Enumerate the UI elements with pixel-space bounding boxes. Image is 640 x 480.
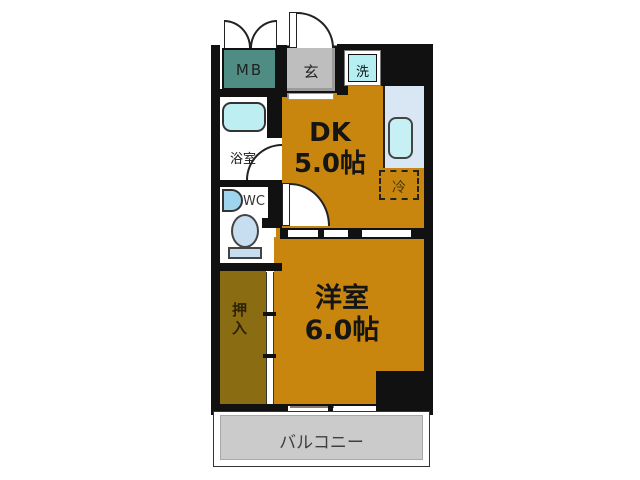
washing-machine-label: 洗 [349,61,376,80]
wall-right [424,85,433,415]
closet-door-tick [263,354,276,358]
mb-door-arc-right [250,20,277,48]
entrance-step [288,93,334,100]
entrance-area: 玄 [285,46,337,93]
dk-label: DK 5.0帖 [270,118,390,179]
living-name: 洋室 [280,283,404,315]
wall-door-stub [262,218,282,228]
closet-sliding-door [266,272,274,404]
wall-left [211,45,220,415]
wall-below-mb [211,89,287,97]
living-size: 6.0帖 [280,315,404,347]
kitchen-sink [388,117,413,159]
meter-box-label: MB [224,61,275,79]
wall-wc-dk [268,181,282,218]
wc-label: WC [243,194,265,209]
toilet-tank [228,247,262,259]
dk-name: DK [270,118,390,149]
meter-box: MB [222,48,277,90]
wall-wc-closet [211,263,282,271]
bathtub [222,102,266,132]
washing-machine-space: 洗 [344,50,381,86]
washing-machine-pan: 洗 [348,54,377,82]
dk-size: 5.0帖 [270,149,390,180]
entrance-door-leaf [289,12,297,48]
mb-door-arc-left [224,20,251,48]
partition-tick [348,230,362,237]
wall-corner-top-right [381,44,433,86]
wall-pillar-bottom-right [376,371,433,415]
balcony: バルコニー [220,415,423,460]
refrigerator-label: 冷 [381,177,417,197]
closet-label: 押入 [229,302,250,338]
balcony-label: バルコニー [221,428,422,453]
entrance-door-arc [297,12,334,48]
partition-cap-right [411,228,425,239]
entrance-label: 玄 [287,61,335,82]
closet-door-tick [263,312,276,316]
toilet-bowl [231,214,259,248]
floor-plan: 押入 バルコニー MB 玄 洗 [0,0,640,480]
living-label: 洋室 6.0帖 [280,283,404,347]
room-closet [220,271,266,405]
partition-tick [318,230,324,237]
partition-cap-left [280,228,288,239]
dk-door-leaf [282,183,290,226]
